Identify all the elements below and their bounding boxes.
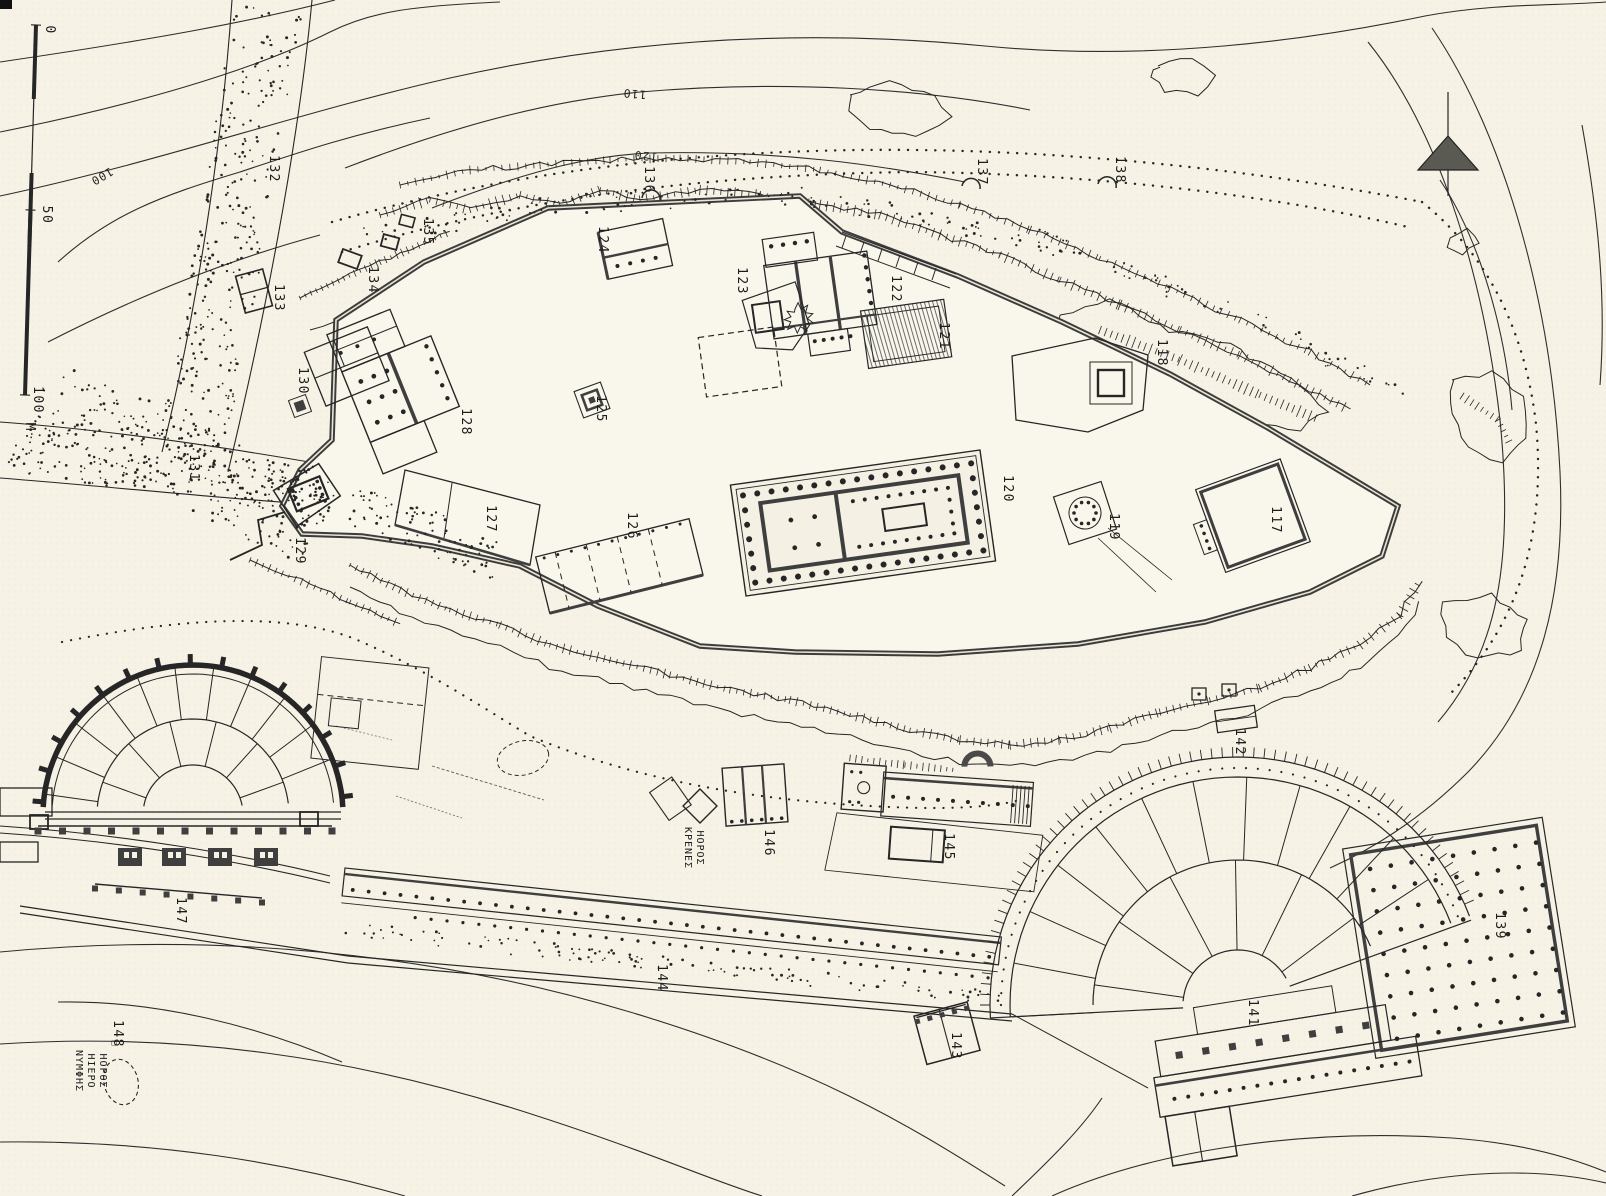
plan-drawing: 1171181191201211221231241251261271281291… xyxy=(0,0,1606,1196)
acropolis-wall xyxy=(282,196,1398,654)
contour-label-110: 110 xyxy=(622,86,647,102)
scale-tick-0: 0 xyxy=(42,25,57,34)
label-122: 122 xyxy=(888,275,903,303)
label-136: 136 xyxy=(641,166,656,194)
approach-wall xyxy=(230,512,285,560)
label-132: 132 xyxy=(266,155,281,183)
label-137: 137 xyxy=(974,158,989,186)
label-131: 131 xyxy=(186,454,201,482)
label-117: 117 xyxy=(1268,506,1283,534)
monument-pedestal xyxy=(288,394,311,417)
greek-label-1-0: ΗΟΡΟΣ xyxy=(97,1053,108,1088)
tilted-enclosure xyxy=(650,777,692,820)
scale-bar xyxy=(20,25,41,395)
building-135 xyxy=(381,214,415,250)
diamond-structure xyxy=(683,789,717,823)
building-143 xyxy=(914,1002,980,1065)
stoa-144 xyxy=(341,868,1001,972)
label-144: 144 xyxy=(654,964,669,992)
label-119: 119 xyxy=(1106,513,1121,541)
label-139: 139 xyxy=(1492,912,1507,940)
label-134: 134 xyxy=(365,266,380,294)
scale-tick-50: 50 xyxy=(39,206,54,225)
tiny-inscription xyxy=(396,796,462,818)
label-142: 142 xyxy=(1232,728,1247,756)
page-corner-mark xyxy=(0,0,12,9)
label-126: 126 xyxy=(624,512,639,540)
scale-tick-100: 100 xyxy=(30,386,45,414)
label-118: 118 xyxy=(1154,339,1169,367)
label-146: 146 xyxy=(761,829,776,857)
label-133: 133 xyxy=(271,284,286,312)
building-139-odeion xyxy=(1343,817,1576,1058)
north-arrow-icon xyxy=(1418,92,1478,196)
greek-label-1-2: ΝΥΜΦΗΣ xyxy=(73,1050,84,1092)
greek-label-0-1: ΚΡΕΝΕΣ xyxy=(682,827,693,869)
label-130: 130 xyxy=(295,367,310,395)
label-128: 128 xyxy=(458,408,473,436)
label-147: 147 xyxy=(173,897,188,925)
label-143: 143 xyxy=(948,1032,963,1060)
boundary-marker-glyph: □ xyxy=(110,1041,119,1046)
tiny-inscription xyxy=(432,766,544,800)
greek-label-0-0: ΗΟΡΟΣ xyxy=(694,830,705,865)
scale-unit: M. xyxy=(22,423,37,442)
contour-label-100: 100 xyxy=(88,164,116,188)
contour-label-120: 120 xyxy=(633,148,658,164)
theatre-141-stage xyxy=(1144,974,1430,1167)
tiny-inscription xyxy=(336,726,392,740)
label-120: 120 xyxy=(1000,475,1015,503)
label-141: 141 xyxy=(1245,999,1260,1027)
choregic-monuments xyxy=(1192,684,1236,700)
site-plan: 1171181191201211221231241251261271281291… xyxy=(0,0,1606,1196)
label-138: 138 xyxy=(1112,156,1127,184)
label-145: 145 xyxy=(941,833,956,861)
building-134 xyxy=(338,249,362,269)
label-127: 127 xyxy=(483,505,498,533)
greek-label-1-1: ΗΙΕΡΟ xyxy=(85,1053,96,1088)
label-123: 123 xyxy=(734,267,749,295)
label-125: 125 xyxy=(593,395,608,423)
building-146 xyxy=(722,764,788,826)
label-124: 124 xyxy=(595,226,610,254)
dashed-enclosure xyxy=(494,736,552,780)
label-129: 129 xyxy=(292,537,307,565)
label-121: 121 xyxy=(936,322,951,350)
building-133 xyxy=(236,269,273,313)
label-135: 135 xyxy=(420,218,435,246)
